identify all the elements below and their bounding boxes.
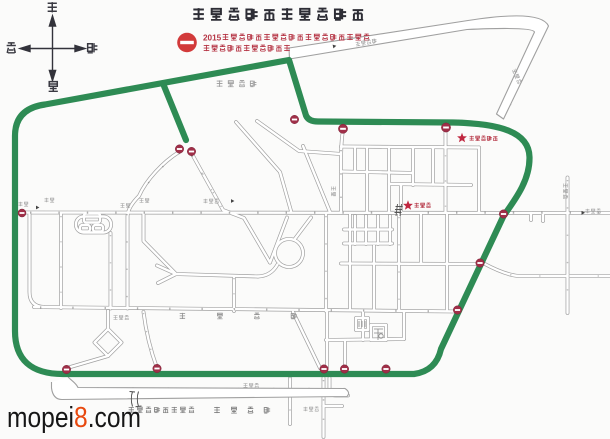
svg-text:2015: 2015 <box>203 34 222 43</box>
svg-text:mopei8.com: mopei8.com <box>7 402 141 434</box>
